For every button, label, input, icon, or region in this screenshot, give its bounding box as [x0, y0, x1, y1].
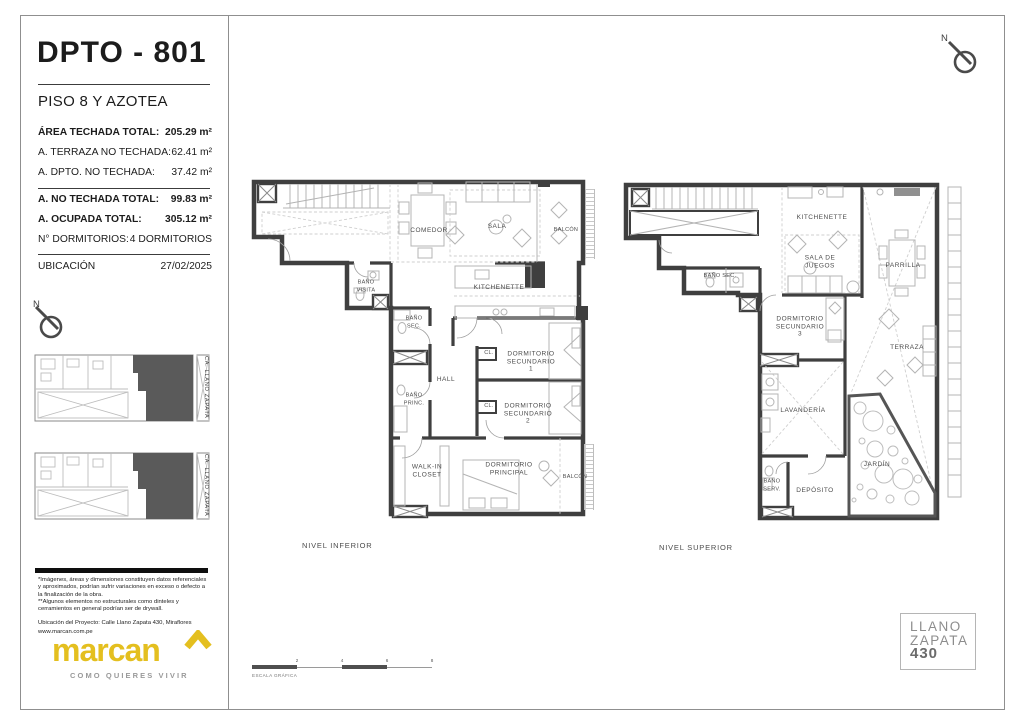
scale-segment [342, 665, 387, 669]
room-label-bano-princ: BAÑO PRINC. [404, 392, 424, 407]
sidebar-divider [228, 15, 229, 709]
plan-caption-inferior: NIVEL INFERIOR [302, 541, 373, 550]
site-map-lower [33, 449, 211, 527]
room-label-parrilla: PARRILLA [886, 262, 921, 270]
stat-row: ÁREA TECHADA TOTAL: 205.29 m² [38, 127, 212, 141]
graphic-scale: 2 4 6 8 ESCALA GRÁFICA [252, 658, 437, 684]
scale-segment [297, 667, 342, 668]
stat-value: 62.41 m² [171, 147, 212, 161]
stat-label: A. NO TECHADA TOTAL: [38, 194, 159, 208]
north-arrow-icon [944, 38, 986, 80]
stat-row: A. NO TECHADA TOTAL: 99.83 m² [38, 194, 212, 208]
badge-number: 430 [910, 647, 975, 661]
stat-value: 4 DORMITORIOS [130, 234, 212, 248]
room-label-dorm-principal: DORMITORIO PRINCIPAL [485, 461, 532, 476]
room-label-lavanderia: LAVANDERÍA [780, 407, 825, 415]
location-row: UBICACIÓN 27/02/2025 [38, 261, 212, 275]
room-label-bano-visita: BAÑO VISITA [357, 279, 376, 294]
room-label-cl: CL. [484, 403, 493, 411]
marcan-logo: marcan [52, 632, 160, 669]
floor-plan-sheet: DPTO - 801 PISO 8 Y AZOTEA ÁREA TECHADA … [0, 0, 1024, 724]
badge-line: LLANO [910, 620, 975, 634]
room-label-dorm-sec-2: DORMITORIO SECUNDARIO 2 [504, 403, 552, 426]
north-arrow-icon [30, 303, 74, 347]
room-label-terraza: TERRAZA [890, 344, 924, 352]
logo-tagline: COMO QUIERES VIVIR [70, 671, 189, 680]
rule [38, 188, 210, 189]
stat-row: N° DORMITORIOS: 4 DORMITORIOS [38, 234, 212, 248]
stat-value: 305.12 m² [165, 214, 212, 228]
rule [38, 84, 210, 85]
date-value: 27/02/2025 [160, 261, 212, 275]
room-label-bano-sec: BAÑO SEC. [406, 315, 423, 330]
disclaimer-text: **Algunos elementos no estructurales com… [38, 599, 210, 614]
plan-caption-superior: NIVEL SUPERIOR [659, 543, 733, 552]
scale-segment [252, 665, 297, 669]
stat-value: 99.83 m² [171, 194, 212, 208]
location-label: UBICACIÓN [38, 261, 95, 275]
disclaimer-text: *Imágenes, áreas y dimensiones constituy… [38, 577, 210, 599]
room-label-cl: CL. [484, 350, 493, 358]
stat-value: 37.42 m² [171, 167, 212, 181]
stat-row: A. TERRAZA NO TECHADA: 62.41 m² [38, 147, 212, 161]
room-label-dorm-sec-3: DORMITORIO SECUNDARIO 3 [776, 316, 824, 339]
stat-value: 205.29 m² [165, 127, 212, 141]
stat-label: A. TERRAZA NO TECHADA: [38, 147, 171, 161]
room-label-comedor: COMEDOR [410, 227, 447, 235]
room-label-sala: SALA [488, 223, 507, 231]
room-label-jardin: JARDÍN [864, 461, 890, 469]
street-label: CA. LLANO ZAPATA [203, 454, 209, 522]
room-label-deposito: DEPÓSITO [796, 487, 833, 495]
street-label: CA. LLANO ZAPATA [203, 356, 209, 424]
room-label-walkin-closet: WALK-IN CLOSET [412, 463, 442, 478]
scale-tick: 4 [341, 658, 344, 663]
highlighted-unit [133, 355, 193, 421]
stat-label: ÁREA TECHADA TOTAL: [38, 127, 159, 141]
project-location-text: Ubicación del Proyecto: Calle Llano Zapa… [38, 620, 210, 627]
louver-band [585, 189, 595, 259]
room-label-kitchenette: KITCHENETTE [797, 214, 848, 222]
footer-bar [35, 568, 208, 573]
scale-tick: 8 [431, 658, 434, 663]
room-label-bano-sec: BAÑO SEC. [704, 273, 737, 281]
room-label-kitchenette: KITCHENETTE [474, 284, 525, 292]
scale-tick: 6 [386, 658, 389, 663]
scale-label: ESCALA GRÁFICA [252, 673, 297, 678]
stat-row: A. DPTO. NO TECHADA: 37.42 m² [38, 167, 212, 181]
stat-row: A. OCUPADA TOTAL: 305.12 m² [38, 214, 212, 228]
unit-title: DPTO - 801 [37, 36, 207, 70]
stat-label: N° DORMITORIOS: [38, 234, 129, 248]
room-label-bano-serv: BAÑO SERV. [763, 478, 780, 493]
scale-segment [387, 667, 432, 668]
highlighted-unit [133, 453, 193, 519]
room-label-dorm-sec-1: DORMITORIO SECUNDARIO 1 [507, 351, 555, 374]
room-label-hall: HALL [437, 376, 455, 384]
stat-label: A. OCUPADA TOTAL: [38, 214, 142, 228]
site-map-upper [33, 351, 211, 429]
room-label-balcon: BALCÓN [554, 227, 578, 235]
scale-tick: 2 [296, 658, 299, 663]
planter-band [948, 187, 961, 497]
logo-caret-icon [184, 630, 212, 650]
room-label-sala-de-juegos: SALA DE JUEGOS [805, 254, 836, 269]
floor-subtitle: PISO 8 Y AZOTEA [38, 93, 168, 110]
stat-label: A. DPTO. NO TECHADA: [38, 167, 155, 181]
project-badge: LLANO ZAPATA 430 [900, 613, 976, 670]
rule [38, 254, 210, 255]
room-label-balcon: BALCÓN [563, 474, 587, 482]
